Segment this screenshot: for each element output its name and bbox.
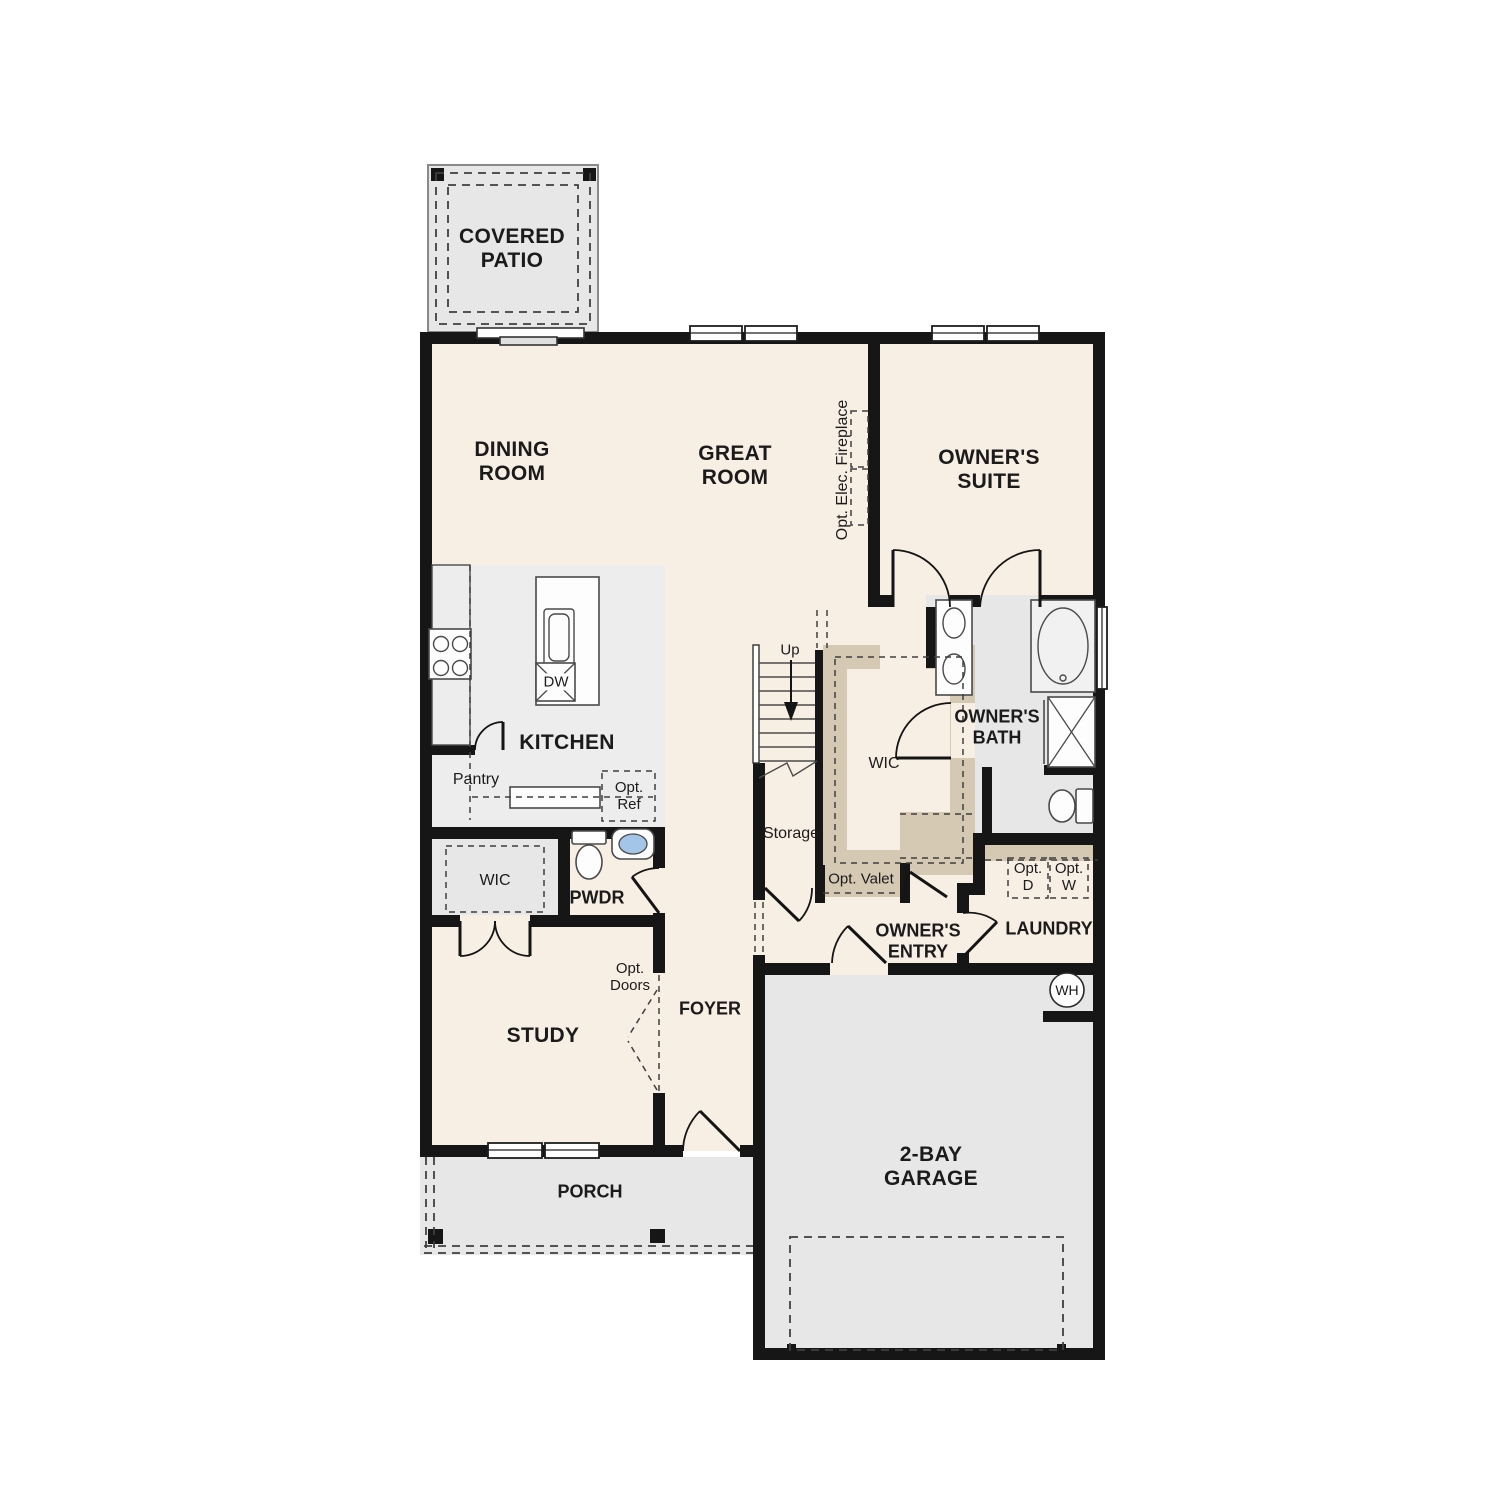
porch-post-right <box>650 1229 665 1243</box>
porch-post-left <box>428 1229 443 1244</box>
wall-study-top-a <box>420 915 460 927</box>
wall-valet-stub-left <box>815 865 825 903</box>
great-room-window-icon <box>745 326 797 341</box>
wall-garage-left <box>753 955 765 1360</box>
wall-toilet-nook-left <box>982 767 992 833</box>
wall-study-right <box>653 1093 665 1157</box>
powder-sink-icon <box>612 829 654 859</box>
great-room-label: GREAT ROOM <box>680 442 790 490</box>
bath-toilet-icon <box>1049 789 1093 823</box>
wall-foyer-bottom-a <box>665 1145 683 1157</box>
powder-label: PWDR <box>570 888 625 909</box>
wall-wic-pwdr-divider <box>558 839 570 921</box>
pantry-label: Pantry <box>453 771 499 789</box>
wall-laundry-left-b <box>957 895 969 913</box>
opt-doors-label: Opt. Doors <box>603 960 658 995</box>
wall-study-top-b <box>530 915 665 927</box>
covered-patio-label: COVERED PATIO <box>447 225 577 273</box>
study-window-icon <box>488 1143 542 1158</box>
floor-plan: COVERED PATIO DINING ROOM GREAT ROOM OWN… <box>0 0 1500 1500</box>
study-label: STUDY <box>507 1024 580 1048</box>
study-window-icon <box>545 1143 599 1158</box>
porch-label: PORCH <box>557 1182 622 1203</box>
owners-suite-window-icon <box>987 326 1039 341</box>
wall-wh-nook <box>1043 1011 1105 1022</box>
garage-door-jamb-left <box>787 1344 796 1352</box>
porch-floor <box>420 1157 755 1255</box>
wall-bath-bottom <box>973 833 1105 845</box>
floor-plan-canvas <box>0 0 1500 1500</box>
owners-bath-label: OWNER'S BATH <box>947 706 1047 747</box>
fireplace-label: Opt. Elec. Fireplace <box>834 400 852 541</box>
opt-washer-label: Opt. W <box>1052 860 1086 895</box>
wall-laundry-jog <box>957 883 985 895</box>
opt-valet-label: Opt. Valet <box>828 870 894 887</box>
wall-suite-divider <box>868 332 880 607</box>
wic-primary-label: WIC <box>868 755 899 773</box>
valet-corridor-floor <box>900 812 973 860</box>
laundry-label: LAUNDRY <box>1005 919 1092 940</box>
wall-pantry-stub <box>420 745 475 755</box>
wall-suite-bottom-a <box>868 595 893 607</box>
water-heater-label: WH <box>1055 982 1078 998</box>
storage-label: Storage <box>763 825 819 843</box>
owners-entry-label: OWNER'S ENTRY <box>863 920 973 961</box>
opt-ref-label: Opt. Ref <box>609 779 649 814</box>
garage-label: 2-BAY GARAGE <box>871 1143 991 1191</box>
dishwasher-label: DW <box>542 673 571 690</box>
wall-exterior-left <box>420 332 432 1157</box>
foyer-label: FOYER <box>679 999 741 1020</box>
bath-vanity-icon <box>936 600 972 695</box>
cooktop-icon <box>429 629 471 679</box>
great-room-window-icon <box>690 326 742 341</box>
bath-window-icon <box>1097 607 1107 689</box>
stair-railing <box>753 645 759 763</box>
owners-suite-label: OWNER'S SUITE <box>924 446 1054 494</box>
wic-hall-label: WIC <box>479 872 510 890</box>
wall-garage-top-a <box>765 963 830 975</box>
wall-exterior-right <box>1093 332 1105 1360</box>
owners-suite-window-icon <box>932 326 984 341</box>
dining-room-label: DINING ROOM <box>452 438 572 486</box>
up-label: Up <box>780 641 799 658</box>
bathtub-icon <box>1031 600 1095 692</box>
kitchen-label: KITCHEN <box>519 731 614 755</box>
opt-dryer-label: Opt. D <box>1011 860 1045 895</box>
wall-laundry-left-a <box>973 843 985 883</box>
garage-door-jamb-right <box>1057 1344 1066 1352</box>
patio-post-left <box>431 168 444 181</box>
shower-icon <box>1044 697 1095 767</box>
